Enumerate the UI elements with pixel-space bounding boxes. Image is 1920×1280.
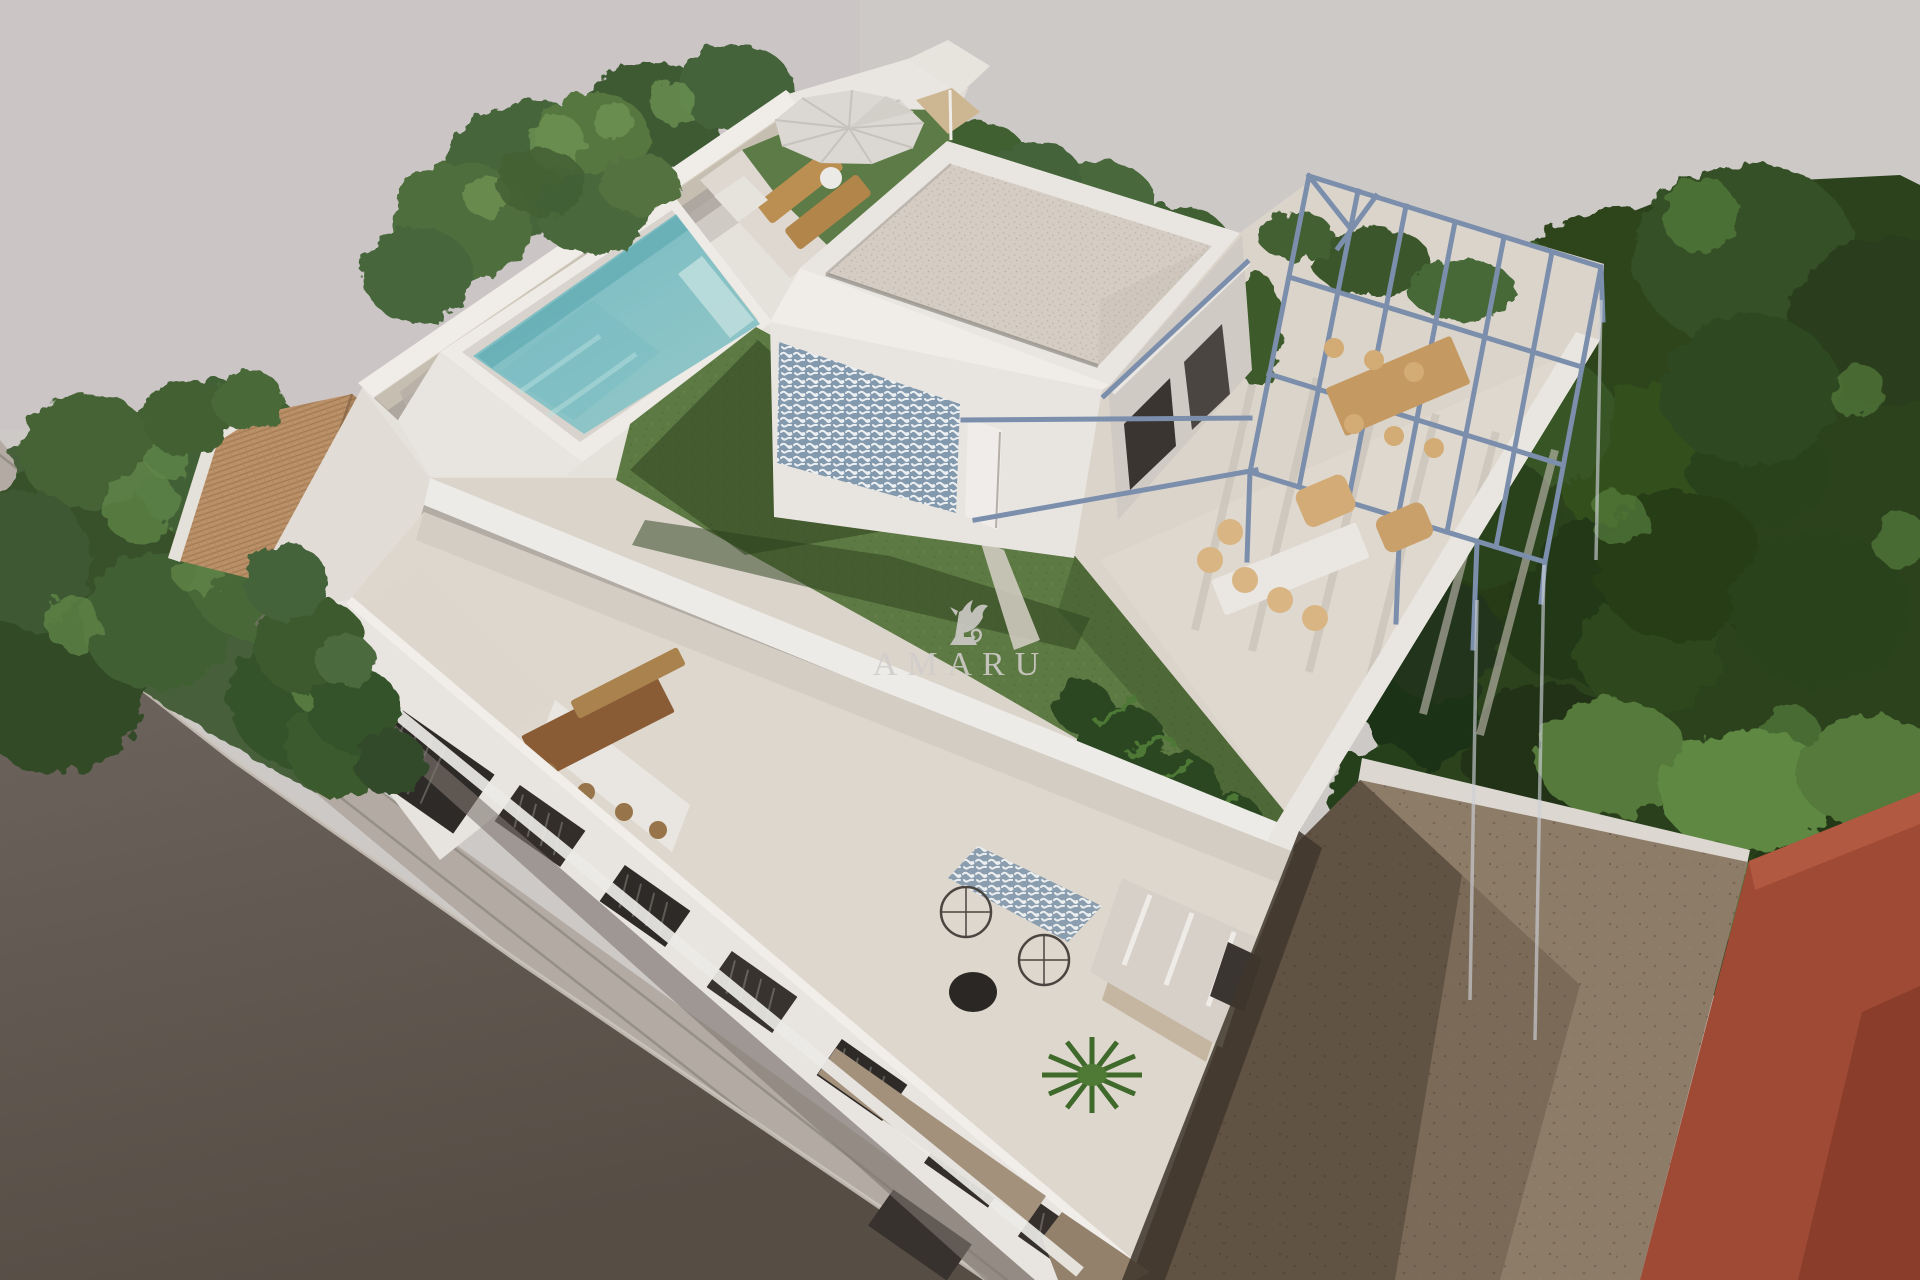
svg-text:AMARU: AMARU <box>873 646 1050 683</box>
